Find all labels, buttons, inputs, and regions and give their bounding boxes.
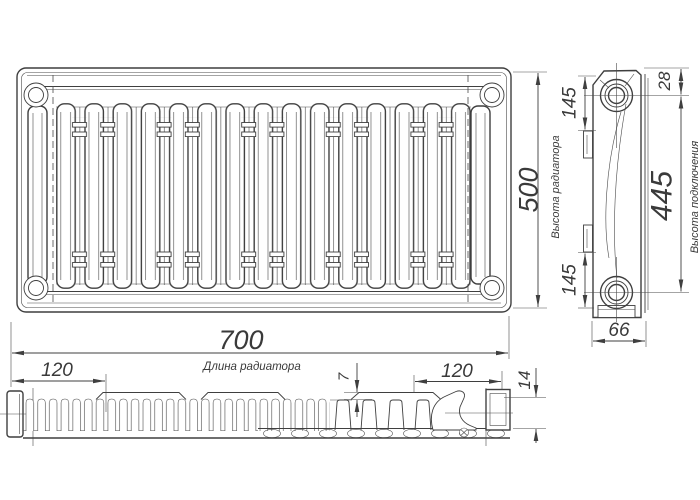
- top-section-view: [0, 388, 513, 446]
- dim-length: 700 Длина радиатора: [11, 316, 509, 387]
- screw-bottom-right: [480, 276, 504, 300]
- dim-mount-bottom-value: 145: [560, 264, 581, 296]
- screw-bottom-left: [24, 276, 48, 300]
- dim-connection-height-label: Высота подключения: [689, 141, 700, 254]
- screw-top-left: [24, 83, 48, 107]
- dim-mount-bottom: 145: [560, 253, 596, 309]
- dim-height-label: Высота радиатора: [550, 135, 562, 238]
- mount-hook-top: [584, 131, 593, 158]
- section-fins: [24, 398, 330, 431]
- dim-connection-height-value: 445: [646, 171, 679, 221]
- dim-height: 500 Высота радиатора: [513, 72, 562, 308]
- dim-depth: 66: [592, 320, 646, 347]
- dim-top-offset-value: 28: [655, 71, 674, 91]
- dim-inset-left-value: 120: [41, 360, 73, 381]
- panel-fins: [335, 400, 431, 430]
- side-view: [584, 63, 649, 322]
- dim-length-value: 700: [218, 325, 263, 355]
- side-body: [593, 71, 641, 318]
- radiator-drawing: 500 Высота радиатора 145 145 28 445 Высо…: [0, 0, 700, 500]
- dim-depth-value: 66: [608, 320, 630, 341]
- dim-bracket-height-value: 14: [515, 371, 534, 390]
- fin-connectors-top: [56, 117, 471, 137]
- dim-mount-top: 145: [560, 76, 596, 131]
- mount-hook-bottom: [584, 225, 593, 252]
- fin-connectors-bottom: [56, 249, 471, 269]
- drawing-canvas: 500 Высота радиатора 145 145 28 445 Высо…: [0, 0, 700, 500]
- screw-top-right: [480, 83, 504, 107]
- dim-length-label: Длина радиатора: [201, 361, 300, 373]
- dim-lip-thickness-value: 7: [335, 372, 352, 381]
- dim-mount-top-value: 145: [560, 87, 581, 119]
- dim-inset-right: 120: [414, 361, 502, 393]
- front-view: [17, 68, 511, 312]
- lip-3: [351, 393, 441, 400]
- dim-inset-right-value: 120: [441, 361, 473, 382]
- dim-height-value: 500: [513, 167, 543, 212]
